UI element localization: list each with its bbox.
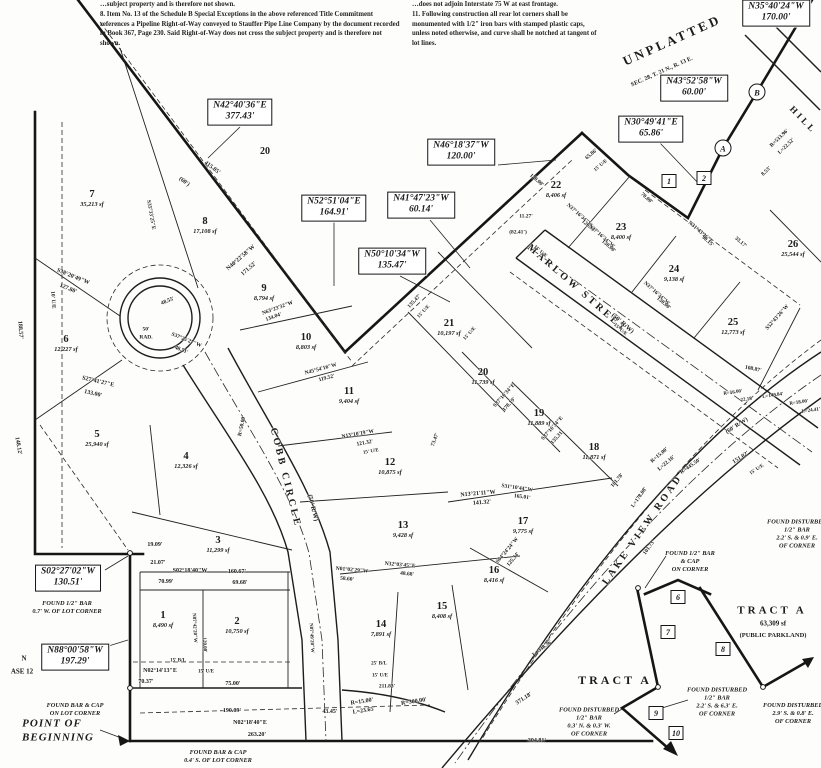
lot-number: 22 <box>546 181 566 192</box>
dimension-label: N13°21'11"W <box>460 489 496 498</box>
found-note-line: 0.7' W. OF LOT CORNER <box>32 608 101 615</box>
lot-label: 158,408 sf <box>432 602 452 620</box>
dimension-label: (82.41') <box>509 230 527 236</box>
lot-area: 10,875 sf <box>378 468 401 476</box>
found-monument-note: FOUND DISTURBED1/2" BAR2.2' S. & 6.3' E.… <box>687 686 747 717</box>
dimension-label: 11.27' <box>519 214 533 220</box>
dimension-label: S27°41'27"E <box>81 375 114 388</box>
street-name-label: HILL <box>788 104 818 135</box>
dimension-label: 120.00' <box>201 637 207 652</box>
bearing-callout-box: N30°49'41"E65.86' <box>618 116 683 143</box>
lot-label: 817,108 sf <box>193 217 216 235</box>
found-note-line: 1/2" BAR <box>704 694 730 701</box>
lot-area: 11,889 sf <box>527 419 550 427</box>
lot-area: 35,213 sf <box>80 200 103 208</box>
found-note-line: 2.2' S. & 6.3' E. <box>696 702 737 709</box>
lot-number: 17 <box>513 517 533 528</box>
dimension-label: R=445.50' <box>680 458 703 476</box>
dimension-label: 58.60' <box>340 577 354 584</box>
lot-number: 23 <box>611 223 631 234</box>
dimension-label: L=178.08' <box>631 487 649 509</box>
found-note-line: ON LOT CORNER <box>50 710 100 717</box>
bearing-callout-box: N50°10'34"W135.47' <box>358 248 426 275</box>
distance-text: 65.86' <box>624 129 677 140</box>
lot-number: 7 <box>80 190 103 201</box>
bearing-text: N88°00'58"W <box>47 646 103 657</box>
lot-number: 13 <box>393 521 413 532</box>
bearing-callout-box: N35°40'24"W170.00' <box>742 0 810 26</box>
dimension-label: L=149.84' <box>762 392 784 400</box>
dimension-label: 22.18' <box>740 397 753 404</box>
dimension-label: 63,309 sf <box>760 621 786 628</box>
lot-area: 11,299 sf <box>206 546 229 554</box>
lot-label: 249,138 sf <box>664 265 684 283</box>
dimension-label: R=16.00' <box>723 389 743 397</box>
lot-area: 10,750 sf <box>225 627 248 635</box>
dimension-label: 133.00' <box>83 389 102 399</box>
lot-area: 8,400 sf <box>611 233 631 241</box>
found-note-line: FOUND DISTURBED <box>687 686 747 693</box>
found-note-line: ON CORNER <box>672 566 709 573</box>
dimension-label: S02°18'40"W <box>173 568 208 574</box>
found-monument-note: FOUND BAR & CAPON LOT CORNER <box>47 702 104 718</box>
found-note-line: FOUND 1/2" BAR <box>665 550 715 557</box>
bearing-text: N35°40'24"W <box>748 2 804 13</box>
distance-text: 135.47' <box>364 261 420 272</box>
distance-text: 130.51' <box>41 578 95 589</box>
dimension-label: 121.32' <box>356 440 373 448</box>
lot-number: 3 <box>206 536 229 547</box>
dimension-label: 48.55' <box>161 297 176 307</box>
lot-area: 7,891 sf <box>371 630 391 638</box>
lot-label: 2512,773 sf <box>721 318 744 336</box>
street-name-label: TRACT A <box>578 674 652 686</box>
found-monument-note: FOUND DISTURBED1/2" BAR0.3' N. & 0.3' W.… <box>559 706 619 737</box>
lot-number: 8 <box>193 217 216 228</box>
dimension-label: 15' U/E <box>463 326 477 341</box>
lot-area: 9,428 sf <box>393 531 413 539</box>
dimension-label: R=18.00' <box>789 399 809 407</box>
dimension-label: 19.09' <box>147 542 162 548</box>
lot-area: 17,108 sf <box>193 227 216 235</box>
lot-label: 2011,739 sf <box>471 368 494 386</box>
lot-area: 25,544 sf <box>781 250 804 258</box>
lot-number: 14 <box>371 620 391 631</box>
lot-number: 25 <box>721 318 744 329</box>
lot-label: 147,891 sf <box>371 620 391 638</box>
survey-note: …subject property and is therefore not s… <box>100 0 400 10</box>
lot-number: 4 <box>174 452 197 463</box>
dimension-label: R=300.00' <box>401 697 428 707</box>
found-note-line: OF CORNER <box>775 718 811 725</box>
bearing-text: N50°10'34"W <box>364 250 420 261</box>
lot-number: 10 <box>296 333 316 344</box>
lot-label: 525,940 sf <box>85 430 108 448</box>
lot-area: 8,490 sf <box>153 621 173 629</box>
dimension-label: 15' U/E <box>593 159 608 173</box>
lot-number: 16 <box>484 566 504 577</box>
dimension-label: L=338.36' <box>532 640 554 659</box>
dimension-label: 190.09' <box>223 708 241 714</box>
dimension-label: 119.52' <box>318 374 335 384</box>
dimension-label: L=24.41' <box>801 407 820 415</box>
lot-label: 1811,871 sf <box>582 443 605 461</box>
dimension-label: 15' U/E <box>198 670 214 675</box>
dimension-label: S31°10'44"W <box>501 484 533 494</box>
lot-number: 18 <box>582 443 605 454</box>
dimension-label: (PUBLIC PARKLAND) <box>740 633 807 640</box>
dimension-label: 151.02' <box>732 451 751 466</box>
lot-area: 8,408 sf <box>432 612 452 620</box>
bearing-callout-box: N41°47'23"W60.14' <box>387 192 455 219</box>
street-name-label: COBB CIRCLE <box>268 427 303 529</box>
dimension-label: L=23.65' <box>352 706 375 715</box>
lot-number: 9 <box>254 284 274 295</box>
bearing-text: N52°51'04"E <box>307 197 360 208</box>
lot-label: 210,750 sf <box>225 617 248 635</box>
dimension-label: 43.45' <box>322 709 337 715</box>
lot-label: 168,416 sf <box>484 566 504 584</box>
lot-area: 8,416 sf <box>484 576 504 584</box>
lot-label: 2625,544 sf <box>781 240 804 258</box>
dimension-label: 70.37' <box>138 679 153 685</box>
dimension-label: 130.00' <box>600 239 616 254</box>
lot-number: 6 <box>54 335 77 346</box>
found-note-line: FOUND DISTURBED <box>559 706 619 713</box>
lot-area: 8,406 sf <box>546 191 566 199</box>
dimension-label: N01°02'29"W <box>335 567 368 575</box>
distance-text: 377.43' <box>213 112 266 123</box>
lot-number: 2 <box>225 617 248 628</box>
lot-area: 8,794 sf <box>254 294 274 302</box>
dimension-label: 48.68' <box>400 572 414 579</box>
curve-point-badge: B <box>749 84 766 101</box>
dimension-label: N02°18'40"E <box>233 720 267 726</box>
line-number-badge: 10 <box>669 726 684 740</box>
dimension-label: 69.68' <box>232 580 247 586</box>
lot-number: 1 <box>153 611 173 622</box>
survey-note: …does not adjoin Interstate 75 W at east… <box>412 0 612 10</box>
street-name-label: TRACT A <box>737 606 806 617</box>
lot-area: 11,739 sf <box>471 378 494 386</box>
dimension-label: 33.17' <box>733 236 747 249</box>
bearing-text: N43°52'58"W <box>666 77 722 88</box>
lot-area: 9,775 sf <box>513 527 533 535</box>
dimension-label: R=50.00' <box>238 415 248 437</box>
line-number-badge: 2 <box>697 171 712 185</box>
dimension-label: 75.00' <box>225 681 240 687</box>
dimension-label: 50' <box>142 327 149 333</box>
dimension-label: 8.53' <box>761 166 773 178</box>
lot-label: 179,775 sf <box>513 517 533 535</box>
plat-map-page: COBB CIRCLE(50' R/W)MARLOW STREET(50' R/… <box>0 0 821 768</box>
lot-area: 12,773 sf <box>721 328 744 336</box>
lot-number: 20 <box>471 368 494 379</box>
street-name-label: UNPLATTED <box>621 12 723 67</box>
lot-label: 311,299 sf <box>206 536 229 554</box>
dimension-label: 127.80' <box>58 283 77 295</box>
dimension-label: (60' R/W) <box>725 417 749 436</box>
lot-area: 25,940 sf <box>85 440 108 448</box>
lot-label: 108,803 sf <box>296 333 316 351</box>
found-monument-note: FOUND BAR & CAP0.4' S. OF LOT CORNER <box>184 749 252 765</box>
dimension-label: N02°14'13"E <box>143 668 177 674</box>
bearing-text: N41°47'23"W <box>393 194 449 205</box>
dimension-label: N <box>21 656 26 663</box>
found-note-line: FOUND DISTURBED <box>763 702 821 709</box>
found-note-line: FOUND BAR & CAP <box>47 702 104 709</box>
dimension-label: 90.15' <box>700 235 714 248</box>
lot-number: 12 <box>378 458 401 469</box>
bearing-callout-box: N52°51'04"E164.91' <box>301 195 366 222</box>
found-monument-note: FOUND DISTURBED2.9' S. & 0.8' E.OF CORNE… <box>763 702 821 726</box>
survey-note: 11. Following construction all rear lot … <box>412 10 602 48</box>
bearing-callout-box: N88°00'58"W197.29' <box>41 644 109 671</box>
dimension-label: 20 <box>260 147 270 157</box>
lot-label: 98,794 sf <box>254 284 274 302</box>
label-layer: COBB CIRCLE(50' R/W)MARLOW STREET(50' R/… <box>0 0 821 768</box>
dimension-label: 101.73' <box>643 540 657 557</box>
lot-number: 24 <box>664 265 684 276</box>
dimension-label: 188.57' <box>16 321 23 340</box>
dimension-label: 73.47' <box>431 433 441 448</box>
found-monument-note: FOUND 1/2" BAR0.7' W. OF LOT CORNER <box>32 600 101 616</box>
dimension-label: 171.52' <box>240 261 258 277</box>
dimension-label: 10' U/E <box>49 291 56 309</box>
dimension-label: 165.01' <box>513 494 530 502</box>
dimension-label: 101.78' <box>611 473 626 489</box>
dimension-label: 211.83' <box>379 684 395 690</box>
dimension-label: 15' B/L <box>170 659 186 664</box>
distance-text: 120.00' <box>433 152 489 163</box>
dimension-label: S35°33'25"E <box>145 200 156 231</box>
lot-label: 228,406 sf <box>546 181 566 199</box>
bearing-text: N30°49'41"E <box>624 118 677 129</box>
dimension-label: 70.99' <box>158 579 173 585</box>
lot-label: 18,490 sf <box>153 611 173 629</box>
survey-note: 8. Item No. 13 of the Schedule B Special… <box>100 10 400 48</box>
found-note-line: FOUND BAR & CAP <box>190 749 247 756</box>
lot-label: 1210,875 sf <box>378 458 401 476</box>
dimension-label: 48.51' <box>174 346 189 356</box>
dimension-label: 148.12' <box>13 437 22 456</box>
curve-point-badge: A <box>715 140 732 157</box>
dimension-label: 120.00' <box>528 173 544 188</box>
line-number-badge: 8 <box>716 642 731 656</box>
bearing-text: N46°18'37"W <box>433 141 489 152</box>
found-note-line: & CAP <box>681 558 700 565</box>
found-note-line: OF CORNER <box>571 730 607 737</box>
line-number-badge: 1 <box>662 174 677 188</box>
line-number-badge: 6 <box>671 590 686 604</box>
dimension-label: POINT OF <box>22 719 82 730</box>
found-note-line: OF CORNER <box>779 542 815 549</box>
dimension-label: N87°42'20"W <box>191 613 198 643</box>
distance-text: 197.29' <box>47 657 103 668</box>
found-note-line: OF CORNER <box>699 710 735 717</box>
line-number-badge: 7 <box>661 625 676 639</box>
dimension-label: R=15.00' <box>350 697 374 707</box>
lot-label: 139,428 sf <box>393 521 413 539</box>
distance-text: 170.00' <box>748 13 804 24</box>
dimension-label: 15' U/E <box>372 674 388 679</box>
dimension-label: 415.05' <box>203 160 221 176</box>
dimension-label: (60') <box>178 176 191 188</box>
dimension-label: (50' R/W) <box>306 494 319 522</box>
bearing-callout-box: N43°52'58"W60.00' <box>660 75 728 102</box>
lot-label: 238,400 sf <box>611 223 631 241</box>
found-monument-note: FOUND DISTURBED1/2" BAR2.2' S. & 0.9' E.… <box>767 518 821 549</box>
dimension-label: 70.00' <box>639 192 653 205</box>
lot-area: 8,803 sf <box>296 343 316 351</box>
dimension-label: S52°43'26"W <box>765 304 790 331</box>
lot-area: 10,197 sf <box>437 329 460 337</box>
dimension-label: 304.81' <box>528 738 546 744</box>
dimension-label: N32°03'45"E <box>384 562 415 570</box>
lot-label: 2110,197 sf <box>437 319 460 337</box>
lot-label: 735,213 sf <box>80 190 103 208</box>
found-note-line: 2.9' S. & 0.8' E. <box>772 710 813 717</box>
lot-label: 412,326 sf <box>174 452 197 470</box>
found-note-line: 0.4' S. OF LOT CORNER <box>184 757 252 764</box>
bearing-text: S02°27'02"W <box>41 567 95 578</box>
dimension-label: 135.47' <box>407 294 422 310</box>
lot-area: 9,404 sf <box>339 397 359 405</box>
bearing-callout-box: S02°27'02"W130.51' <box>35 565 101 592</box>
dimension-label: 141.32' <box>473 499 492 507</box>
bearing-callout-box: N42°40'36"E377.43' <box>207 99 272 126</box>
dimension-label: 15' U/E <box>749 464 765 477</box>
lot-label: 119,404 sf <box>339 387 359 405</box>
dimension-label: RAD. <box>139 335 152 341</box>
lot-number: 5 <box>85 430 108 441</box>
dimension-label: 25' B/L <box>371 662 387 667</box>
dimension-label: 130.00' <box>655 296 671 311</box>
distance-text: 60.14' <box>393 205 449 216</box>
dimension-label: 21.07' <box>150 560 165 566</box>
found-note-line: 1/2" BAR <box>784 526 810 533</box>
lot-area: 12,326 sf <box>174 462 197 470</box>
dimension-label: ASE 12 <box>11 669 33 676</box>
dimension-label: 15' U/E <box>363 448 380 456</box>
dimension-label: BEGINNING <box>22 733 94 744</box>
found-note-line: 1/2" BAR <box>576 714 602 721</box>
lot-number: 15 <box>432 602 452 613</box>
lot-label: 1911,889 sf <box>527 409 550 427</box>
distance-text: 164.91' <box>307 208 360 219</box>
dimension-label: 65.86' <box>585 148 599 161</box>
lot-area: 12,227 sf <box>54 345 77 353</box>
lot-number: 11 <box>339 387 359 398</box>
found-monument-note: FOUND 1/2" BAR& CAPON CORNER <box>665 550 715 574</box>
dimension-label: 108.87' <box>744 366 761 375</box>
lot-area: 9,138 sf <box>664 275 684 283</box>
lot-number: 21 <box>437 319 460 330</box>
dimension-label: 371.18' <box>515 692 534 707</box>
bearing-text: N42°40'36"E <box>213 101 266 112</box>
found-note-line: 0.3' N. & 0.3' W. <box>567 722 610 729</box>
dimension-label: N87°49'20"W <box>308 623 315 653</box>
lot-number: 26 <box>781 240 804 251</box>
dimension-label: 15' U/E <box>417 304 432 319</box>
lot-area: 11,871 sf <box>582 453 605 461</box>
found-note-line: 2.2' S. & 0.9' E. <box>776 534 817 541</box>
lot-label: 612,227 sf <box>54 335 77 353</box>
line-number-badge: 9 <box>649 706 664 720</box>
distance-text: 60.00' <box>666 88 722 99</box>
found-note-line: FOUND DISTURBED <box>767 518 821 525</box>
dimension-label: 160.67' <box>228 569 246 575</box>
found-note-line: FOUND 1/2" BAR <box>42 600 92 607</box>
lot-number: 19 <box>527 409 550 420</box>
bearing-callout-box: N46°18'37"W120.00' <box>427 139 495 166</box>
dimension-label: 263.20' <box>248 732 266 738</box>
